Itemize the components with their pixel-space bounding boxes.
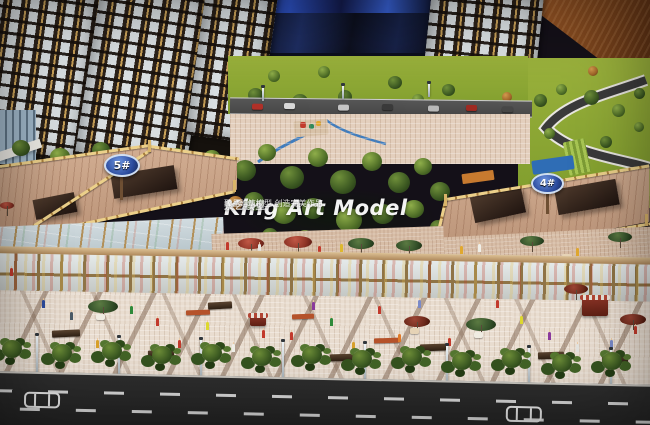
street-tree <box>352 350 372 368</box>
bench <box>186 310 210 316</box>
tree <box>584 90 599 105</box>
street-tree <box>2 340 22 358</box>
railing-post <box>444 194 447 206</box>
person-figure <box>460 246 463 254</box>
cafe-table <box>474 332 483 338</box>
person-figure <box>156 318 159 326</box>
streetlight <box>342 86 344 99</box>
tree <box>544 128 555 139</box>
tree <box>534 94 547 107</box>
person-figure <box>330 318 333 326</box>
person-figure <box>10 268 13 276</box>
tree <box>234 160 256 181</box>
lounge-deck <box>461 170 494 184</box>
model-car <box>502 106 513 112</box>
tree <box>634 122 644 132</box>
model-car <box>428 105 439 111</box>
model-car <box>284 103 295 109</box>
model-car <box>338 105 349 111</box>
tree <box>442 84 455 96</box>
tree <box>556 84 567 95</box>
tree <box>308 148 328 167</box>
tree <box>268 70 280 82</box>
green-umbrella <box>608 232 632 242</box>
streetlight <box>428 84 430 97</box>
cafe-table <box>410 328 419 334</box>
green-umbrella <box>396 240 422 251</box>
person-figure <box>478 244 481 252</box>
building-5-sign: 5# <box>104 154 140 177</box>
person-figure <box>290 332 293 340</box>
lane-markings <box>0 407 650 424</box>
building-4-sign: 4# <box>531 173 564 194</box>
planter-box <box>420 344 446 352</box>
person-figure <box>634 326 637 334</box>
playground-pad <box>293 119 328 138</box>
person-figure <box>226 242 229 250</box>
lane-markings <box>0 389 650 406</box>
tree <box>318 66 330 78</box>
scale-model-photo: 5# 4# <box>0 0 650 425</box>
person-figure <box>576 344 579 352</box>
street-tree <box>552 354 572 372</box>
person-figure <box>576 248 579 256</box>
tree <box>600 136 612 148</box>
tree <box>414 158 432 175</box>
model-car <box>466 105 477 111</box>
playground-equipment <box>300 122 306 128</box>
person-figure <box>96 340 99 348</box>
person-figure <box>340 244 343 252</box>
bench <box>374 338 400 344</box>
street-tree <box>202 344 222 362</box>
cafe-umbrella <box>466 318 496 331</box>
person-figure <box>70 312 73 320</box>
maroon-umbrella <box>564 284 588 294</box>
person-figure <box>206 322 209 330</box>
person-figure <box>232 344 235 352</box>
green-umbrella <box>520 236 544 246</box>
person-figure <box>418 300 421 308</box>
tree <box>388 172 410 193</box>
tree <box>612 104 625 117</box>
tree <box>388 76 402 89</box>
person-figure <box>378 306 381 314</box>
playground-equipment <box>309 124 314 129</box>
model-car <box>382 104 393 110</box>
railing-post <box>645 214 648 226</box>
tree <box>634 88 645 99</box>
street-tree <box>52 344 72 362</box>
person-figure <box>130 306 133 314</box>
street-tree <box>452 352 472 370</box>
railing-post <box>148 140 151 152</box>
person-figure <box>398 334 401 342</box>
tree <box>588 66 598 76</box>
street-tree <box>152 346 172 364</box>
person-figure <box>262 330 265 338</box>
street-tree <box>102 342 122 360</box>
car-outline-marking <box>506 406 542 423</box>
tree <box>258 144 276 161</box>
person-figure <box>312 302 315 310</box>
railing-post <box>233 180 236 192</box>
red-umbrella <box>0 202 14 209</box>
person-figure <box>42 300 45 308</box>
streetlight <box>262 88 264 101</box>
person-figure <box>548 332 551 340</box>
car-outline-marking <box>24 392 60 409</box>
tree <box>362 152 382 171</box>
red-kiosk <box>582 298 608 316</box>
person-figure <box>520 316 523 324</box>
tree <box>280 166 304 189</box>
maroon-umbrella <box>620 314 646 325</box>
watermark-tagline-cn: 臻品建筑模型 创造完美作品 <box>224 198 323 209</box>
model-car <box>252 104 263 110</box>
tree <box>330 170 356 194</box>
playground-equipment <box>316 121 321 126</box>
person-figure <box>352 342 355 350</box>
shrub <box>12 140 30 156</box>
cafe-table <box>96 314 105 320</box>
street-tree <box>252 348 272 366</box>
street-tree <box>602 352 622 370</box>
person-figure <box>178 340 181 348</box>
cafe-umbrella <box>88 300 118 313</box>
planter-box <box>52 329 80 337</box>
street-tree <box>302 346 322 364</box>
bench <box>292 314 314 320</box>
green-umbrella <box>348 238 374 249</box>
planter-box <box>208 301 232 309</box>
person-figure <box>496 300 499 308</box>
red-umbrella <box>284 236 312 248</box>
red-cart <box>250 316 266 326</box>
maroon-umbrella <box>404 316 430 327</box>
street-tree <box>402 348 422 366</box>
street-tree <box>502 350 522 368</box>
